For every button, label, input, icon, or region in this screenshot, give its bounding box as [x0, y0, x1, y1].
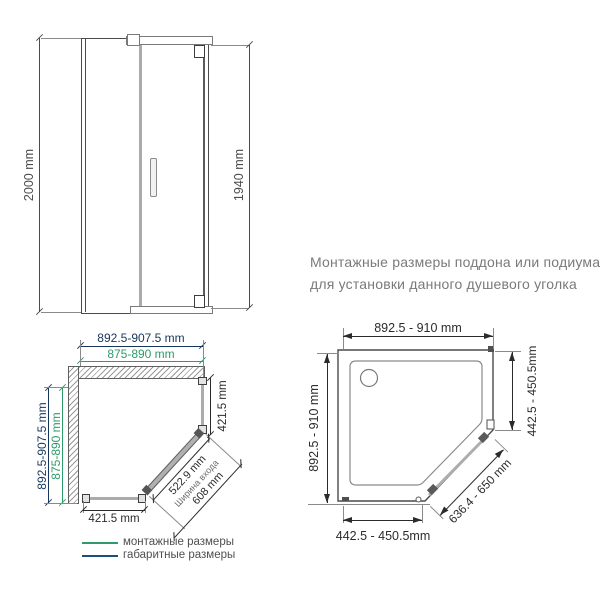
legend-swatch-overall [82, 555, 118, 557]
extension-line [422, 504, 423, 523]
dim-line [343, 520, 422, 521]
tray-plan-view: 892.5 - 910 mm 892.5 - 910 mm 442.5 - 45… [0, 0, 600, 600]
dim-arrow [413, 517, 422, 523]
dim-tray-bottom-segment: 442.5 - 450.5mm [0, 0, 600, 600]
legend-label-mounting: монтажные размеры [123, 536, 234, 548]
dim-arrow [343, 517, 352, 523]
legend-swatch-mounting [82, 542, 118, 544]
legend-label-overall: габаритные размеры [123, 549, 235, 561]
